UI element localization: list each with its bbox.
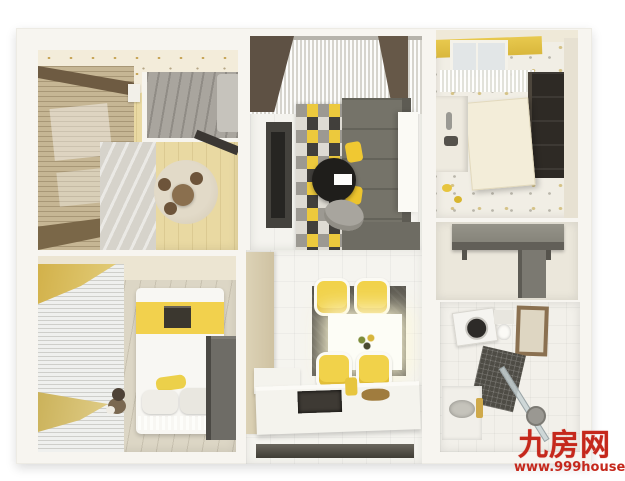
table-flowers <box>354 332 380 352</box>
sunlit-floor <box>100 142 156 250</box>
floor-item-yellow <box>442 184 452 192</box>
tv-screen <box>271 132 285 218</box>
yellow-cushion <box>344 141 363 163</box>
floor-item-yellow <box>454 196 462 203</box>
cream-kitchen-table <box>464 97 535 190</box>
tv-console <box>266 122 292 228</box>
washer-door <box>464 315 490 341</box>
faucet <box>446 112 452 130</box>
toilet-bowl <box>497 324 511 340</box>
table-tray <box>334 174 352 185</box>
pet-dog <box>106 388 130 416</box>
window-mullion <box>476 43 478 71</box>
cabinet-leg <box>462 250 467 260</box>
gold-towel <box>476 398 483 418</box>
yellow-dining-chair <box>314 278 350 316</box>
bedroom-bottom-left <box>38 256 236 452</box>
double-bed-gray <box>142 72 238 142</box>
sink-basin <box>449 400 475 418</box>
nightstand <box>128 84 140 102</box>
wardrobe-gray <box>206 336 236 440</box>
kitchen-counter <box>255 381 421 435</box>
dog-head <box>112 388 125 401</box>
chair <box>164 202 177 215</box>
dog-paw <box>106 406 115 414</box>
dining-area <box>246 250 422 464</box>
floorplan-render: 九房网 www.999house.com <box>0 0 625 481</box>
cabinet-leg <box>546 250 551 260</box>
wall-cabinet-gray <box>452 224 564 250</box>
blind-shadow-top <box>38 66 134 96</box>
round-coffee-table <box>312 158 356 202</box>
entry-threshold <box>256 444 414 458</box>
wooden-bowl <box>361 388 389 401</box>
bedroom-top-left <box>38 50 238 250</box>
entry-hall <box>436 222 578 300</box>
watermark-url: www.999house.com <box>514 461 624 475</box>
white-cabinet <box>398 112 418 212</box>
chair <box>158 178 171 191</box>
toilet <box>494 310 514 324</box>
small-table <box>172 184 194 206</box>
chair <box>190 172 203 185</box>
kitchen <box>436 30 578 218</box>
gold-curtain <box>38 264 116 304</box>
living-room <box>250 36 422 250</box>
yellow-dining-chair <box>354 278 390 316</box>
white-pillow <box>142 390 178 414</box>
cabinet-side-panel <box>518 250 546 298</box>
sink-counter <box>436 96 468 172</box>
washing-machine <box>452 307 498 347</box>
gold-curtain <box>38 392 108 432</box>
wall-band <box>564 38 578 218</box>
window-white-blinds <box>38 264 124 452</box>
sink-basin <box>444 136 458 146</box>
counter-sink <box>297 390 342 414</box>
tall-dark-cabinet <box>528 72 568 178</box>
wall-picture <box>515 305 549 356</box>
yellow-bottle <box>345 377 358 395</box>
sheer-curtain <box>440 70 534 92</box>
shower-head <box>526 406 546 426</box>
watermark-logo: 九房网 <box>518 431 622 461</box>
bed-tray <box>164 306 191 328</box>
bed-pillows <box>217 74 238 132</box>
